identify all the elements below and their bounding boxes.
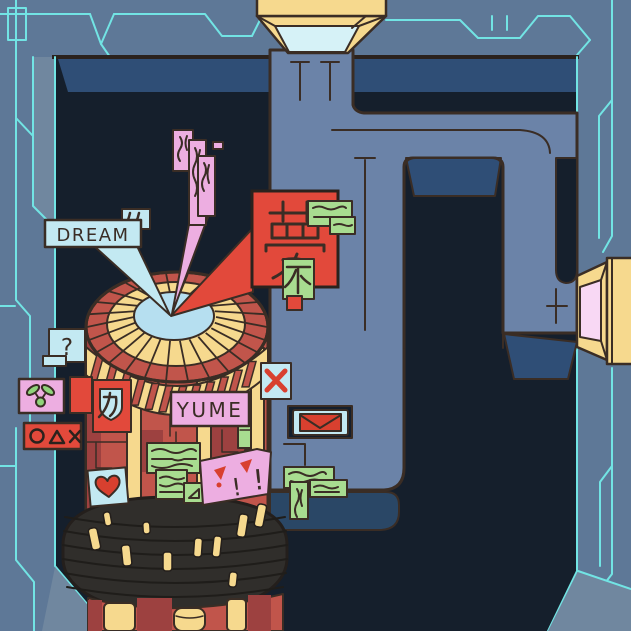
sprout-sign: [19, 379, 64, 413]
small-blue-tag: [43, 356, 66, 366]
base-window: [104, 603, 135, 631]
side-vent: [577, 258, 631, 364]
question-sign: ?: [43, 329, 85, 366]
wall-inner-face-top-left: [33, 57, 55, 228]
pipe-opening-bevel: [406, 158, 501, 196]
shapes-sign: [24, 423, 81, 449]
dream-label: DREAM: [56, 225, 129, 246]
heart-sign: [88, 467, 129, 506]
envelope-icon: [300, 414, 341, 431]
pipe-end-bevel: [504, 334, 577, 379]
small-pink-tag: [213, 142, 223, 149]
x-mark-sign: [261, 363, 291, 399]
base-window: [174, 608, 205, 631]
illustration-canvas: DREAM ?: [0, 0, 631, 631]
small-red-tag: [287, 296, 302, 310]
yume-sign: YUME: [171, 392, 249, 426]
yume-label: YUME: [176, 398, 244, 422]
envelope-sign: [288, 406, 352, 438]
pipe-gap-shadow: [556, 158, 577, 283]
base-window: [227, 599, 246, 631]
